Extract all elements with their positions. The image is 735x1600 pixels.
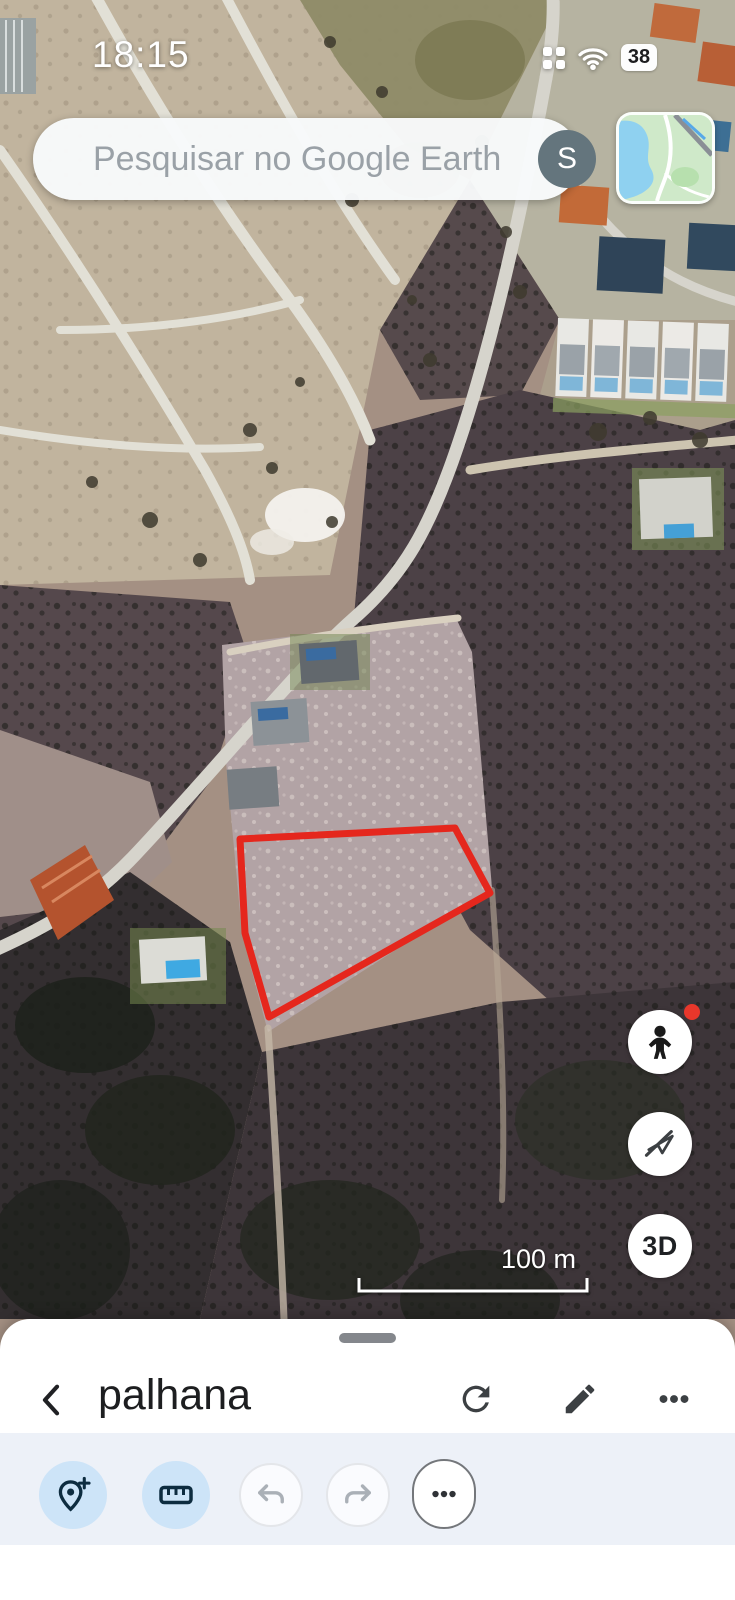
threed-button[interactable]: 3D — [628, 1214, 692, 1278]
scale-label: 100 m — [501, 1244, 590, 1274]
threed-label: 3D — [642, 1231, 678, 1262]
battery-icon: 38 — [621, 44, 657, 71]
edit-toolbar — [0, 1433, 735, 1545]
scale-bar — [356, 1276, 590, 1294]
add-placemark-icon — [54, 1476, 92, 1514]
pegman-icon — [642, 1024, 678, 1060]
search-input[interactable] — [91, 139, 538, 180]
overflow-dots-icon — [653, 1378, 695, 1420]
avatar[interactable]: S — [538, 130, 596, 188]
measure-button[interactable] — [142, 1461, 210, 1529]
map-scale: 100 m — [356, 1244, 590, 1294]
redo-button[interactable] — [326, 1463, 390, 1527]
house-with-pool-right — [632, 468, 724, 550]
wifi-icon — [577, 45, 609, 71]
bottom-sheet: palhana — [0, 1319, 735, 1600]
back-button[interactable] — [28, 1377, 74, 1423]
undo-button[interactable] — [239, 1463, 303, 1527]
avatar-letter: S — [557, 142, 577, 176]
pegman-button[interactable] — [628, 1010, 692, 1074]
refresh-button[interactable] — [452, 1375, 500, 1423]
fly-disabled-button[interactable] — [628, 1112, 692, 1176]
notification-badge — [684, 1004, 700, 1020]
battery-percent: 38 — [628, 46, 650, 69]
toolbar-more-button[interactable] — [412, 1459, 476, 1529]
refresh-icon — [456, 1379, 496, 1419]
status-time: 18:15 — [92, 34, 190, 76]
warehouse-building — [0, 18, 36, 94]
edit-button[interactable] — [556, 1375, 604, 1423]
ruler-icon — [156, 1475, 196, 1515]
map-thumbnail-button[interactable] — [616, 112, 715, 204]
search-bar[interactable]: S — [33, 118, 580, 200]
status-icons: 38 — [543, 44, 657, 71]
sheet-drag-handle[interactable] — [339, 1333, 396, 1343]
redo-icon — [340, 1477, 376, 1513]
undo-icon — [253, 1477, 289, 1513]
more-dots-icon — [427, 1477, 461, 1511]
map-thumbnail-art — [619, 115, 712, 201]
chevron-left-icon — [36, 1383, 66, 1417]
pencil-icon — [561, 1380, 599, 1418]
page-title: palhana — [98, 1371, 251, 1420]
add-placemark-button[interactable] — [39, 1461, 107, 1529]
grid-icon — [543, 47, 565, 69]
house-with-pool-left — [130, 928, 226, 1004]
plane-off-icon — [642, 1126, 678, 1162]
more-button[interactable] — [650, 1375, 698, 1423]
